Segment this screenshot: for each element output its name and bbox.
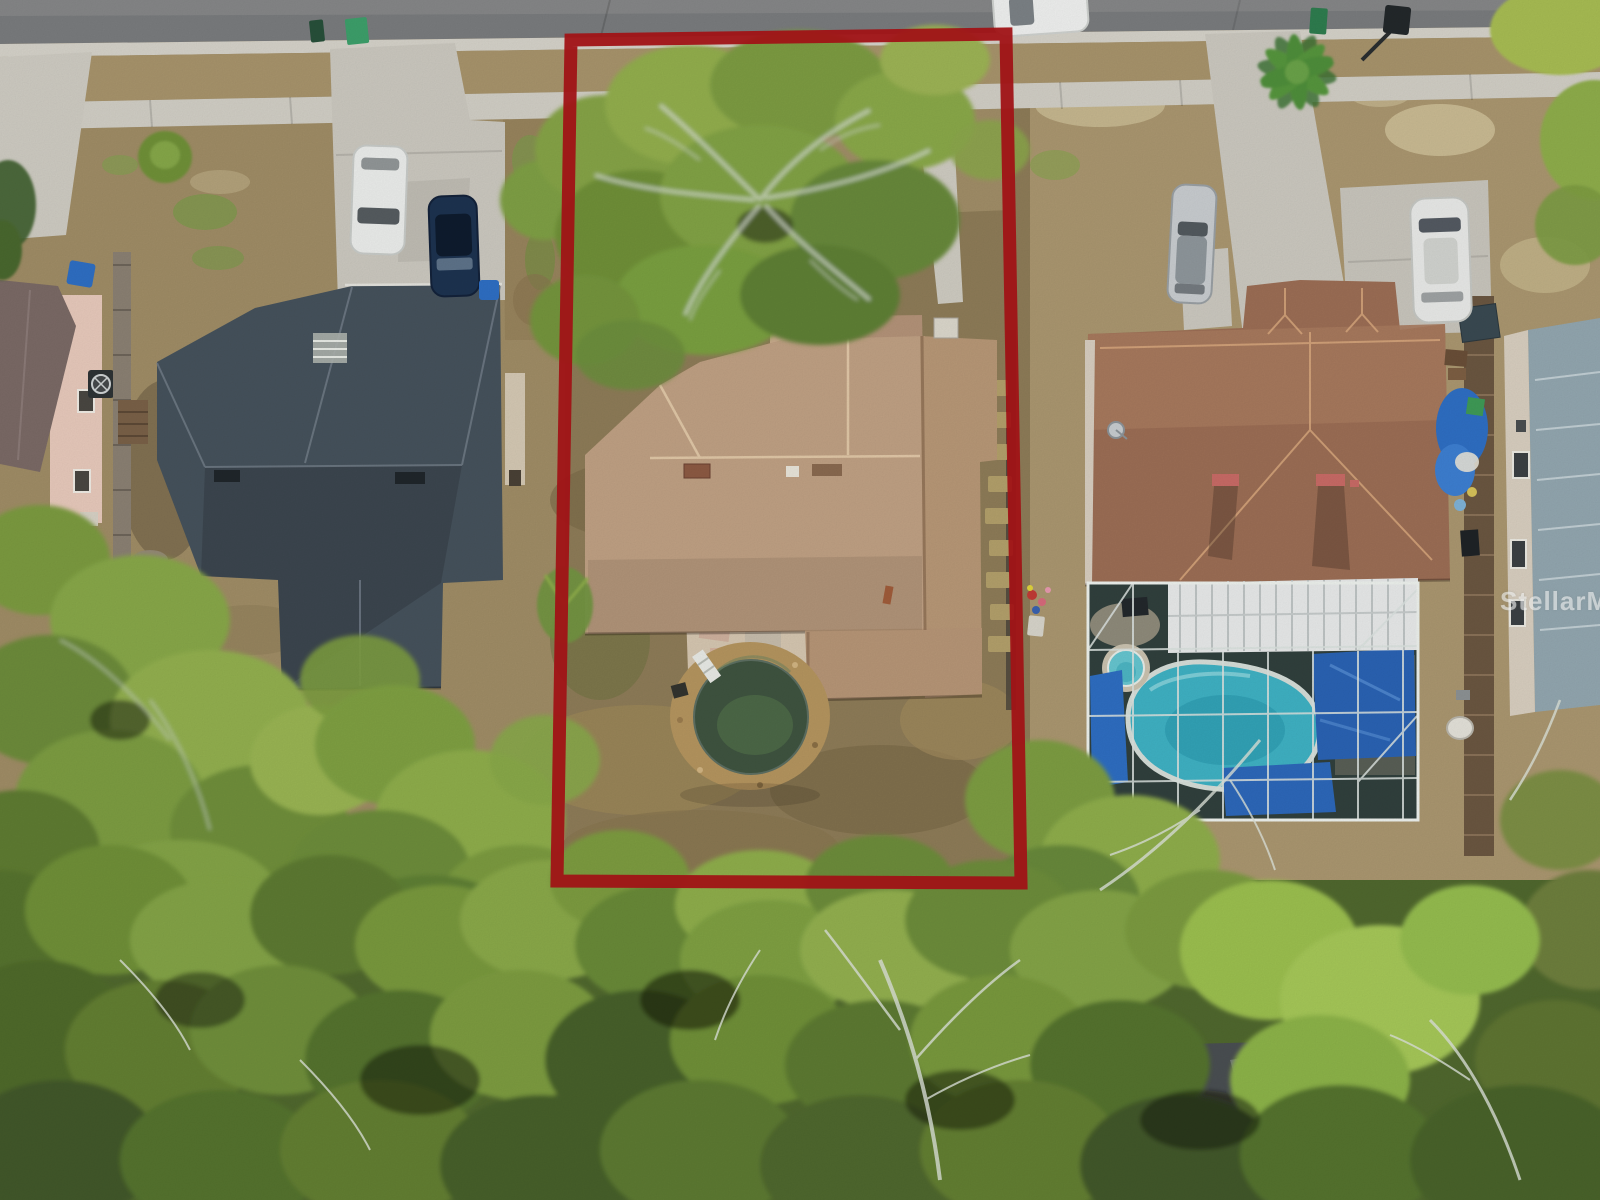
aerial-photo: StellarMLS [0, 0, 1600, 1200]
grain-overlay [0, 0, 1600, 1200]
aerial-scene [0, 0, 1600, 1200]
